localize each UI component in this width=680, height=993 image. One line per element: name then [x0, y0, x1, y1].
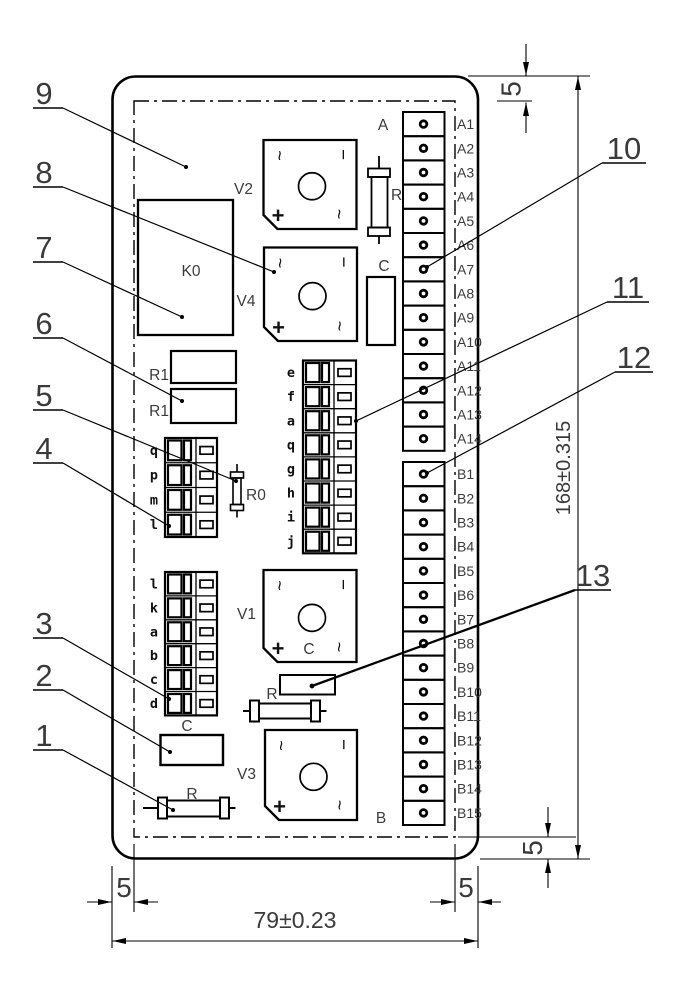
clamp-cell: [306, 484, 320, 503]
clamp-cell: [322, 484, 329, 503]
callout-number: 12: [617, 340, 651, 375]
wire-slot: [338, 465, 351, 473]
clamp-cell: [184, 646, 191, 665]
terminal-screw-center: [422, 267, 426, 271]
terminal-screw-center: [422, 521, 426, 525]
terminal-label: B5: [457, 563, 474, 579]
clamp-cell: [168, 490, 182, 510]
terminal-label: B13: [457, 757, 482, 773]
terminal-label: A2: [457, 140, 474, 156]
terminal-strip-a: A A1A2A3A4A5A6A7A8A9A10A11A12A13A14: [378, 112, 482, 451]
callout: 9: [33, 76, 188, 169]
block-letter-label: i: [287, 510, 295, 526]
resistor-r-bottom-label: R: [186, 786, 197, 803]
capacitor-c-top-body: [367, 277, 395, 345]
terminal-screw-center: [422, 219, 426, 223]
block-letter-label: j: [287, 534, 295, 550]
clamp-cell: [322, 387, 329, 406]
leader-tip-dot: [180, 315, 184, 319]
wire-slot: [338, 417, 351, 425]
wire-slot: [200, 628, 213, 636]
clamp-cell: [306, 532, 320, 551]
terminal-label: A1: [457, 116, 474, 132]
clamp-cell: [322, 459, 329, 478]
leader-tip-dot: [234, 479, 238, 483]
callout: 5: [33, 378, 238, 483]
terminal-screw-center: [422, 714, 426, 718]
terminal-strip-b-label: B: [376, 810, 386, 827]
block-letter-label: a: [287, 413, 295, 429]
dim-board-width: 79±0.23: [254, 907, 337, 933]
wire-slot: [200, 700, 213, 708]
plus-mark-icon: +: [272, 315, 285, 340]
ac-mark-icon: ~: [330, 800, 350, 811]
block-letter-label: q: [150, 443, 158, 459]
leader-tip-dot: [425, 265, 429, 269]
clamp-cell: [322, 508, 329, 527]
wire-slot: [200, 521, 213, 529]
dim-margin-bottom-right-v: 5: [517, 840, 548, 856]
terminal-label: A6: [457, 237, 474, 253]
clamp-cell: [306, 435, 320, 454]
wire-slot: [338, 369, 351, 377]
leader-tip-dot: [272, 270, 276, 274]
clamp-cell: [306, 363, 320, 382]
wire-slot: [338, 489, 351, 497]
leader-line: [63, 262, 182, 317]
block-letter-label: l: [150, 517, 158, 533]
wire-slot: [200, 676, 213, 684]
clamp-cell: [322, 411, 329, 430]
callout-number: 3: [35, 606, 52, 641]
terminal-label: A7: [457, 261, 474, 277]
leader-tip-dot: [425, 471, 429, 475]
resistor-r-bottom: R: [143, 786, 236, 819]
wire-slot: [200, 580, 213, 588]
bridge-v2-label: V2: [234, 181, 253, 198]
wire-slot: [200, 604, 213, 612]
capacitor-c-bottom-label: C: [181, 718, 192, 735]
v1-center-mark: C: [303, 641, 314, 658]
block-letter-label: a: [150, 624, 158, 640]
leader-tip-dot: [354, 419, 358, 423]
terminal-label: A3: [457, 165, 474, 181]
callout: 1: [33, 718, 175, 812]
clamp-cell: [322, 363, 329, 382]
terminal-screw-center: [422, 763, 426, 767]
terminal-screw-center: [422, 340, 426, 344]
dim-margin-bottom-right: 5: [458, 872, 474, 903]
clamp-cell: [184, 490, 191, 510]
letter-block-middle: efaqghij: [287, 361, 356, 554]
dim-board-height: 168±0.315: [553, 421, 575, 515]
terminal-screw-center: [422, 569, 426, 573]
leader-line: [427, 372, 615, 473]
callout: 6: [33, 306, 184, 403]
resistor-r-mid: R: [243, 686, 327, 722]
leader-tip-dot: [167, 524, 171, 528]
ac-mark-icon: ~: [271, 740, 291, 751]
letter-block-upper: qpml: [150, 438, 217, 537]
leader-line: [63, 108, 186, 167]
resistor-r1-upper-label: R1: [149, 367, 169, 384]
minus-mark-icon: −: [333, 256, 354, 267]
block-letter-label: d: [150, 696, 158, 712]
leader-tip-dot: [180, 399, 184, 403]
leader-line: [63, 750, 173, 810]
wire-slot: [200, 652, 213, 660]
terminal-screw-center: [422, 666, 426, 670]
bridge-v1-label: V1: [237, 606, 256, 623]
wire-slot: [338, 513, 351, 521]
terminal-label: A9: [457, 310, 474, 326]
wire-slot: [200, 496, 213, 504]
terminal-screw-center: [422, 413, 426, 417]
terminal-label: A12: [457, 382, 482, 398]
plus-mark-icon: +: [272, 203, 285, 228]
callout-number: 10: [607, 131, 641, 166]
terminal-label: B1: [457, 466, 474, 482]
callout-number: 8: [35, 155, 52, 190]
terminal-screw-center: [422, 195, 426, 199]
callout: 11: [354, 270, 649, 423]
callout: 7: [33, 230, 184, 319]
block-letter-label: b: [150, 648, 158, 664]
minus-mark-icon: −: [333, 739, 354, 750]
terminal-screw-center: [422, 690, 426, 694]
minus-mark-icon: −: [332, 579, 353, 590]
terminal-screw-center: [422, 472, 426, 476]
wire-slot: [200, 471, 213, 479]
clamp-cell: [322, 435, 329, 454]
terminal-screw-center: [422, 811, 426, 815]
terminal-screw-center: [422, 316, 426, 320]
minus-mark-icon: −: [332, 149, 353, 160]
relay-k0: K0: [138, 200, 233, 335]
terminal-label: A4: [457, 189, 474, 205]
capacitor-c-bottom: C: [161, 718, 224, 765]
callout-number: 7: [35, 230, 52, 265]
drawing-canvas: 5 168±0.315 5 5 5 79±0.23 K0 R1 R1: [0, 0, 680, 993]
clamp-cell: [184, 575, 191, 594]
clamp-cell: [168, 646, 182, 665]
leader-tip-dot: [167, 697, 171, 701]
block-letter-label: k: [150, 600, 158, 616]
terminal-screw-center: [422, 171, 426, 175]
terminal-label: B3: [457, 515, 474, 531]
ac-mark-icon: ~: [329, 209, 349, 220]
block-letter-label: c: [150, 672, 158, 688]
item-13-component: [280, 675, 335, 695]
leader-line: [63, 638, 169, 699]
terminal-label: B8: [457, 636, 474, 652]
capacitor-c-bottom-body: [161, 735, 224, 765]
terminal-label: A13: [457, 407, 482, 423]
terminal-label: A10: [457, 334, 482, 350]
leader-tip-dot: [184, 165, 188, 169]
terminal-screw-center: [422, 243, 426, 247]
resistor-r0-label: R0: [246, 487, 266, 504]
relay-k0-label: K0: [182, 263, 201, 280]
clamp-cell: [184, 515, 191, 535]
terminal-label: B11: [457, 708, 481, 724]
wire-slot: [200, 447, 213, 455]
terminal-label: B9: [457, 660, 474, 676]
clamp-cell: [168, 598, 182, 617]
callout-number: 11: [612, 270, 644, 305]
clamp-cell: [184, 598, 191, 617]
terminal-label: B7: [457, 611, 474, 627]
wire-slot: [338, 393, 351, 401]
terminal-label: B2: [457, 490, 474, 506]
callout-number: 1: [35, 718, 52, 753]
callout: 8: [33, 155, 276, 274]
ac-mark-icon: ~: [270, 258, 290, 269]
terminal-label: B10: [457, 684, 482, 700]
terminal-label: A5: [457, 213, 474, 229]
callout-number: 2: [35, 658, 52, 693]
resistor-r1-lower-label: R1: [149, 403, 169, 420]
ac-mark-icon: ~: [329, 642, 349, 653]
wire-slot: [338, 537, 351, 545]
resistor-r1-pair: R1 R1: [149, 351, 236, 423]
block-letter-label: m: [150, 492, 158, 508]
block-letter-label: p: [150, 468, 158, 484]
callout-number: 4: [35, 431, 52, 466]
terminal-label: B6: [457, 587, 474, 603]
terminal-screw-center: [422, 617, 426, 621]
terminal-screw-center: [422, 738, 426, 742]
terminal-label: B4: [457, 539, 474, 555]
terminal-label: B14: [457, 781, 482, 797]
terminal-strip-a-label: A: [378, 117, 389, 134]
block-letter-label: f: [287, 389, 295, 405]
terminal-label: B12: [457, 732, 482, 748]
block-letter-label: e: [287, 365, 295, 381]
dim-margin-top: 5: [496, 81, 527, 97]
terminal-screw-center: [422, 146, 426, 150]
clamp-cell: [184, 441, 191, 461]
dim-margin-bottom-left: 5: [116, 872, 132, 903]
terminal-screw-center: [422, 545, 426, 549]
leader-tip-dot: [168, 750, 172, 754]
ac-mark-icon: ~: [270, 580, 290, 591]
clamp-cell: [306, 387, 320, 406]
block-letter-label: l: [150, 576, 158, 592]
terminal-label: A14: [457, 431, 482, 447]
plus-mark-icon: +: [272, 636, 285, 661]
terminal-screw-center: [422, 292, 426, 296]
fuse-r-top: R: [368, 156, 402, 244]
ac-mark-icon: ~: [270, 150, 290, 161]
plus-mark-icon: +: [273, 794, 286, 819]
clamp-cell: [184, 670, 191, 689]
clamp-cell: [322, 532, 329, 551]
bridge-v3: ~−+~V3: [237, 730, 357, 820]
terminal-screw-center: [422, 364, 426, 368]
capacitor-c-top-label: C: [378, 258, 389, 275]
leader-line: [356, 302, 607, 421]
clamp-cell: [168, 622, 182, 641]
callout-number: 9: [35, 76, 52, 111]
clamp-cell: [306, 508, 320, 527]
clamp-cell: [168, 465, 182, 485]
resistor-r-mid-label: R: [266, 686, 277, 703]
block-letter-label: q: [287, 437, 295, 453]
resistor-r1-lower-body: [171, 389, 236, 423]
callout-number: 5: [35, 378, 52, 413]
clamp-cell: [184, 694, 191, 713]
terminal-screw-center: [422, 496, 426, 500]
fuse-r-top-label: R: [391, 187, 402, 204]
bridge-v3-label: V3: [237, 766, 256, 783]
capacitor-c-top: C: [367, 258, 395, 345]
block-letter-label: g: [287, 461, 295, 477]
terminal-screw-center: [422, 593, 426, 597]
resistor-r1-upper-body: [171, 351, 236, 383]
terminal-label: B15: [457, 805, 482, 821]
callout-number: 6: [35, 306, 52, 341]
ac-mark-icon: ~: [330, 321, 350, 332]
leader-line: [427, 163, 602, 267]
leader-tip-dot: [310, 684, 315, 689]
callout-number: 13: [576, 558, 610, 593]
terminal-label: A8: [457, 286, 474, 302]
clamp-cell: [168, 575, 182, 594]
clamp-cell: [168, 694, 182, 713]
terminal-screw-center: [422, 122, 426, 126]
clamp-cell: [184, 622, 191, 641]
bridge-v1: ~−+~CV1: [237, 570, 356, 662]
wire-slot: [338, 441, 351, 449]
resistor-r0: R0: [231, 464, 267, 518]
clamp-cell: [168, 670, 182, 689]
terminal-screw-center: [422, 787, 426, 791]
bridge-v4-label: V4: [237, 293, 256, 310]
bridge-v4: ~−+~V4: [237, 248, 357, 342]
bridge-v2: ~−+~V2: [234, 140, 356, 229]
clamp-cell: [306, 459, 320, 478]
block-letter-label: h: [287, 486, 295, 502]
leader-tip-dot: [171, 808, 175, 812]
terminal-screw-center: [422, 437, 426, 441]
clamp-cell: [306, 411, 320, 430]
clamp-cell: [184, 465, 191, 485]
